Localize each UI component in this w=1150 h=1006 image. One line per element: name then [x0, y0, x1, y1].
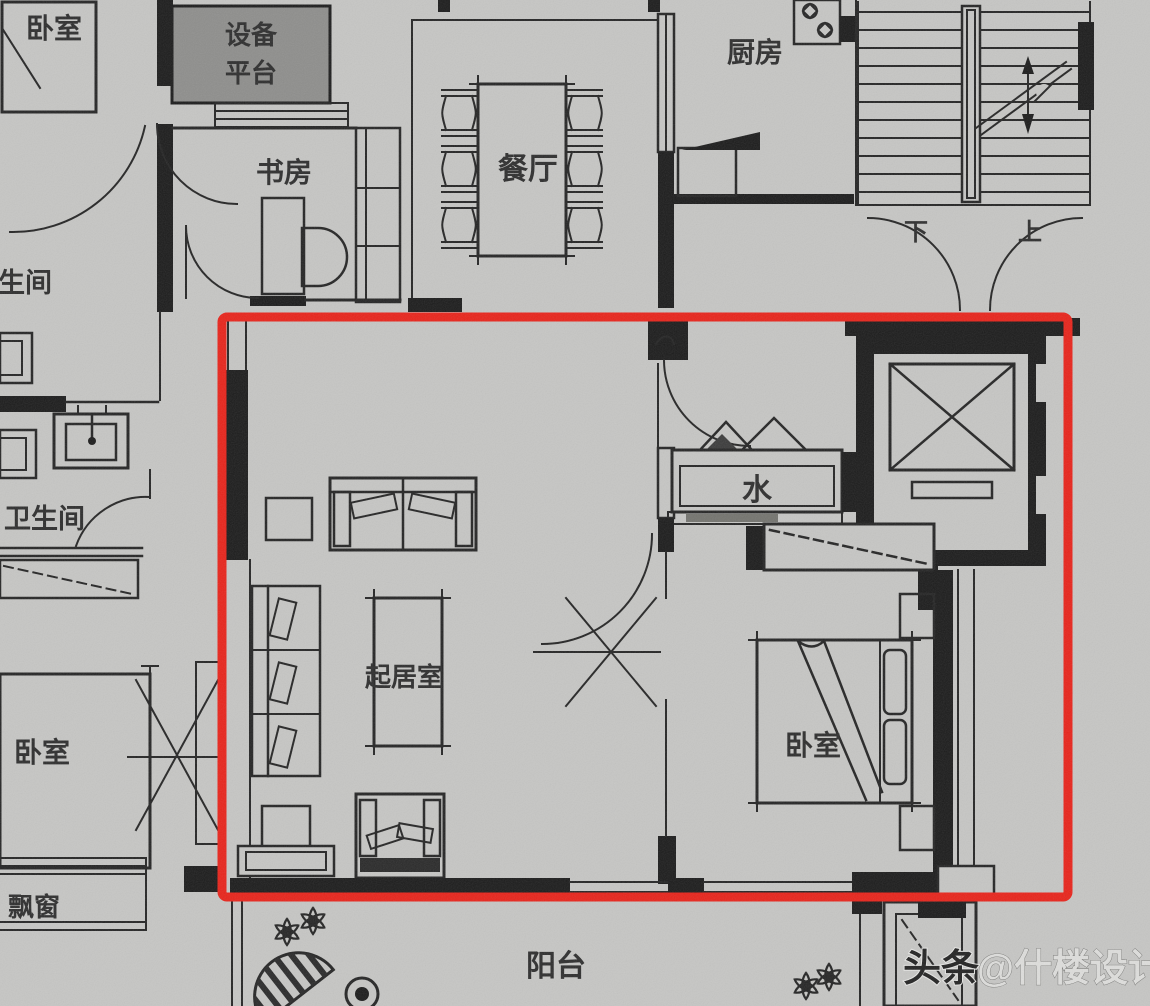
paper-grain-overlay	[0, 0, 1150, 1006]
floor-plan-screenshot: 下 上	[0, 0, 1150, 1006]
floor-plan: 下 上	[0, 0, 1150, 1006]
